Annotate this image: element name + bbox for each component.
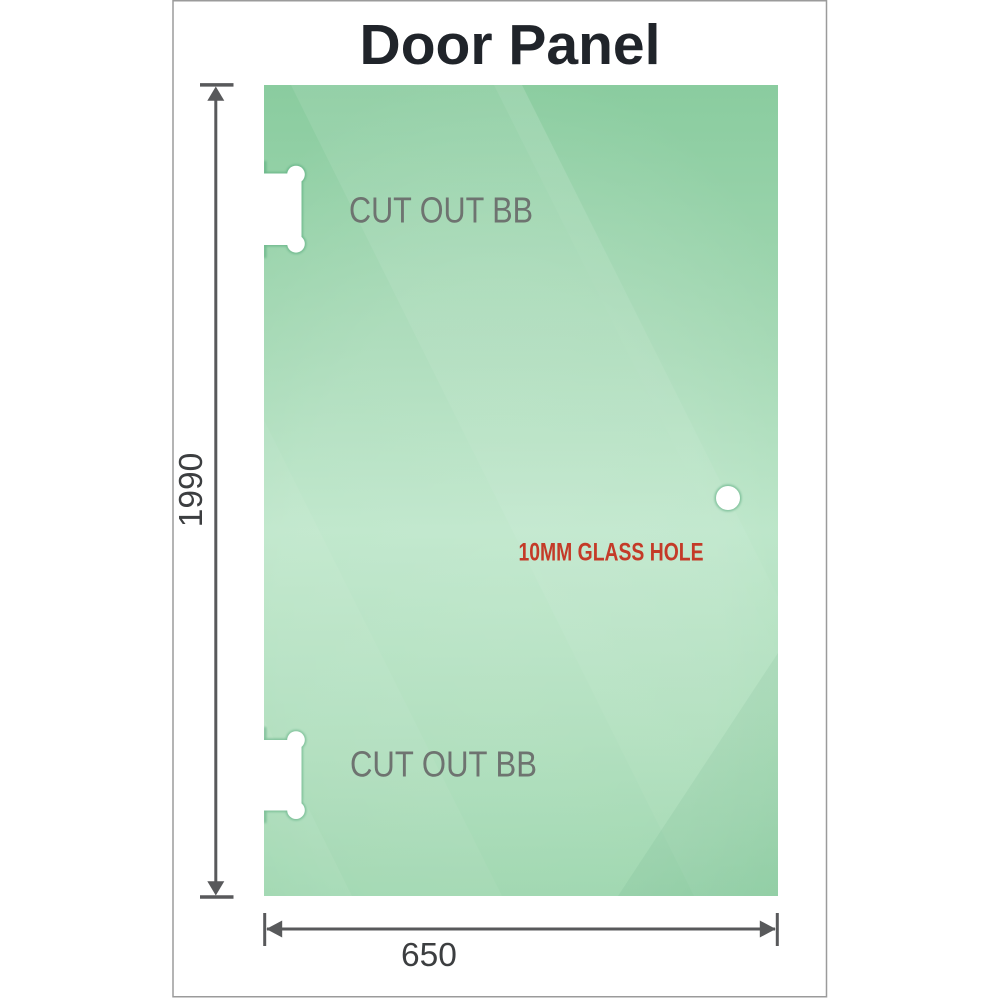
svg-text:10MM GLASS HOLE: 10MM GLASS HOLE — [519, 539, 704, 567]
svg-text:650: 650 — [401, 937, 457, 974]
svg-text:1990: 1990 — [173, 453, 210, 528]
svg-text:Door Panel: Door Panel — [360, 13, 661, 77]
svg-text:CUT OUT BB: CUT OUT BB — [350, 744, 537, 785]
svg-text:CUT OUT BB: CUT OUT BB — [349, 190, 533, 231]
